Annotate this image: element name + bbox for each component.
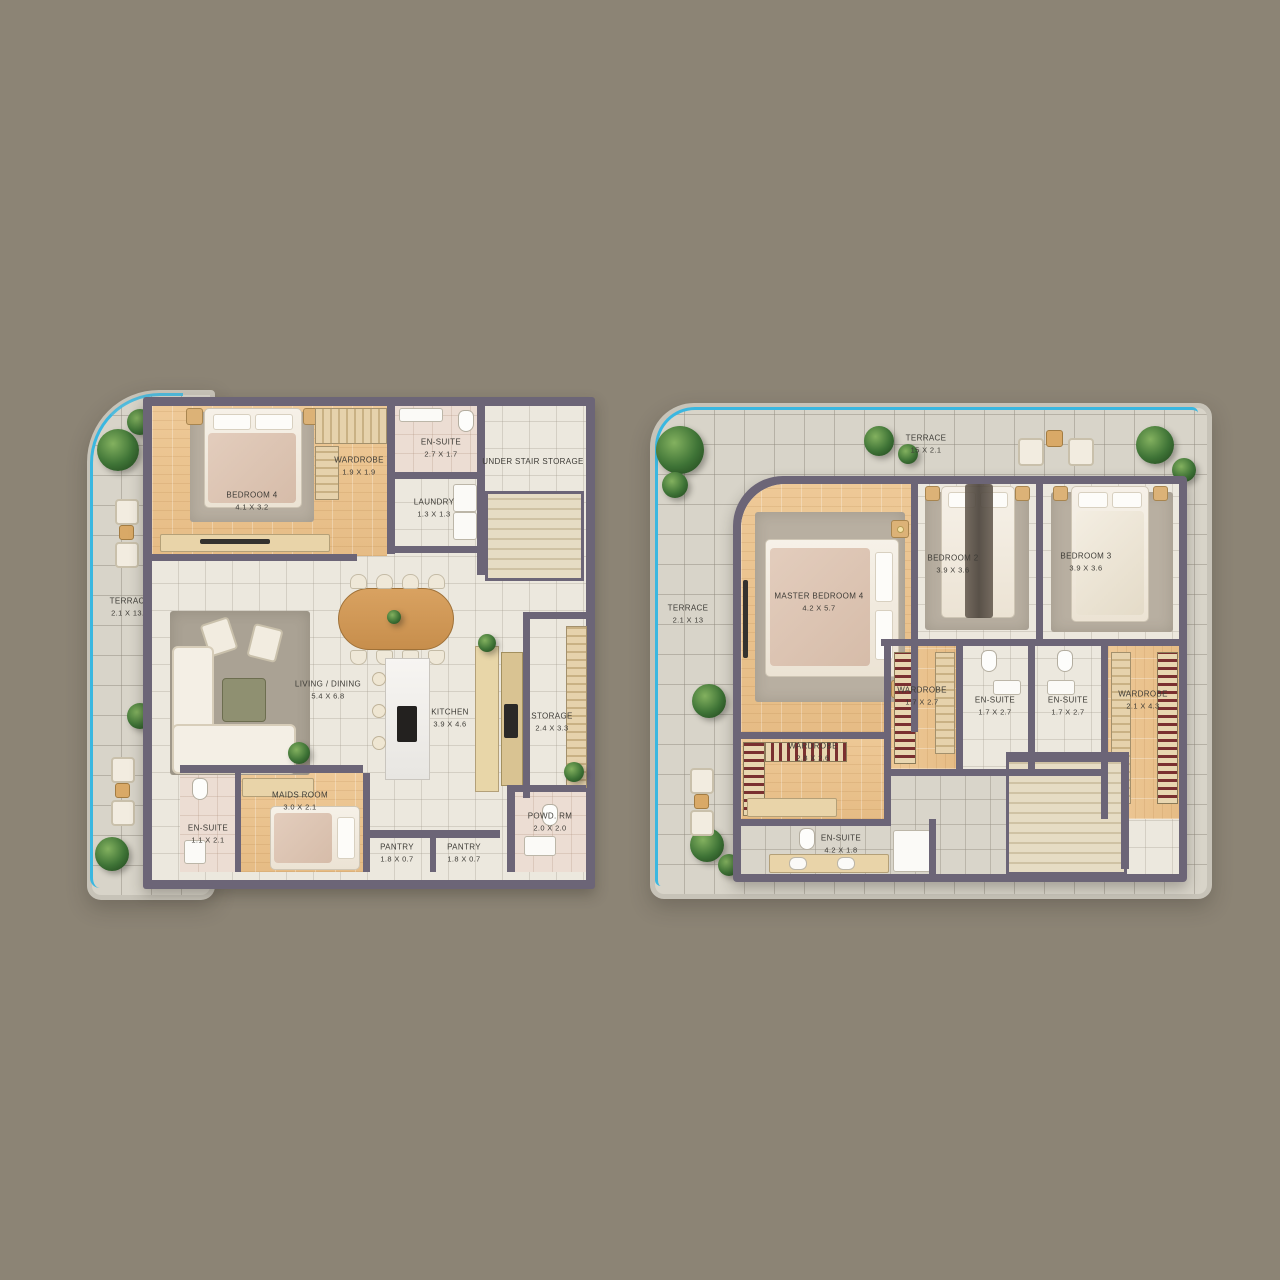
wall bbox=[884, 646, 891, 819]
toilet bbox=[981, 650, 997, 672]
sink bbox=[837, 857, 855, 870]
wall bbox=[395, 546, 485, 553]
dining-chair bbox=[376, 574, 393, 589]
vanity bbox=[769, 854, 889, 873]
room-dims: 2.4 X 3.3 bbox=[531, 722, 572, 733]
terrace-side-table bbox=[1046, 430, 1063, 447]
wall bbox=[1036, 484, 1043, 639]
room-label-bedroom4: BEDROOM 4 4.1 X 3.2 bbox=[226, 489, 277, 512]
room-name: EN-SUITE bbox=[1048, 694, 1088, 706]
plant bbox=[564, 762, 584, 782]
room-label-terrace-side: TERRACE 2.1 X 13 bbox=[668, 602, 709, 625]
toilet bbox=[799, 828, 815, 850]
room-dims: 1.7 X 2.7 bbox=[1048, 706, 1088, 717]
room-label-powder-room: POWD. RM 2.0 X 2.0 bbox=[528, 810, 573, 833]
plant bbox=[288, 742, 310, 764]
room-label-ensuite-master: EN-SUITE 4.2 X 1.8 bbox=[821, 832, 861, 855]
room-label-wardrobe-master: WARDROBE 2.8 X 2.6 bbox=[788, 740, 838, 763]
plant bbox=[95, 837, 129, 871]
room-dims: 3.0 X 2.1 bbox=[272, 801, 328, 812]
room-label-bedroom2: BEDROOM 2 3.9 X 3.6 bbox=[927, 552, 978, 575]
room-label-ensuite-lower: EN-SUITE 1.1 X 2.1 bbox=[188, 822, 228, 845]
room-dims: 1.8 X 0.7 bbox=[380, 853, 414, 864]
wall bbox=[881, 639, 1179, 646]
toilet bbox=[192, 778, 208, 800]
room-label-storage: STORAGE 2.4 X 3.3 bbox=[531, 710, 572, 733]
plant bbox=[97, 429, 139, 471]
coffee-table bbox=[222, 678, 266, 722]
staircase-a bbox=[485, 491, 584, 581]
wardrobe-closet bbox=[1157, 652, 1178, 804]
maids-bed bbox=[270, 806, 360, 870]
room-name: BEDROOM 4 bbox=[226, 489, 277, 501]
nightstand bbox=[1153, 486, 1168, 501]
plant bbox=[656, 426, 704, 474]
interior-b: MASTER BEDROOM 4 4.2 X 5.7 BEDROOM 2 3.9… bbox=[741, 484, 1179, 874]
washer bbox=[453, 484, 477, 512]
dryer bbox=[453, 512, 477, 540]
terrace-chair bbox=[1018, 438, 1044, 466]
wall bbox=[523, 612, 586, 619]
room-label-master-bedroom: MASTER BEDROOM 4 4.2 X 5.7 bbox=[774, 590, 863, 613]
room-label-pantry-left: PANTRY 1.8 X 0.7 bbox=[380, 841, 414, 864]
room-name: PANTRY bbox=[380, 841, 414, 853]
room-label-wardrobe-mid: WARDROBE 1.7 X 2.7 bbox=[897, 684, 947, 707]
nightstand bbox=[1015, 486, 1030, 501]
room-name: STORAGE bbox=[531, 710, 572, 722]
toilet bbox=[458, 410, 474, 432]
terrace-chair bbox=[1068, 438, 1094, 466]
terrace-chair bbox=[111, 800, 135, 826]
shower bbox=[893, 830, 931, 872]
tv bbox=[200, 539, 270, 544]
wall bbox=[523, 612, 530, 798]
room-dims: 2.7 X 1.7 bbox=[421, 448, 461, 459]
pillow bbox=[1112, 492, 1142, 508]
sink bbox=[789, 857, 807, 870]
room-dims: 4.1 X 3.2 bbox=[226, 501, 277, 512]
terrace-side-table bbox=[119, 525, 134, 540]
wall bbox=[363, 830, 500, 838]
plant bbox=[662, 472, 688, 498]
room-label-maids-room: MAIDS ROOM 3.0 X 2.1 bbox=[272, 789, 328, 812]
room-name: WARDROBE bbox=[788, 740, 838, 752]
room-name: WARDROBE bbox=[334, 454, 384, 466]
terrace-chair bbox=[115, 542, 139, 568]
room-dims: 1.9 X 1.9 bbox=[334, 466, 384, 477]
staircase-b bbox=[1006, 759, 1127, 875]
room-dims: 2.1 X 4.3 bbox=[1118, 700, 1168, 711]
dining-chair bbox=[428, 650, 445, 665]
sink bbox=[993, 680, 1021, 695]
room-dims: 4.2 X 5.7 bbox=[774, 602, 863, 613]
room-label-terrace-top: TERRACE 15 X 2.1 bbox=[906, 432, 947, 455]
room-name: TERRACE bbox=[668, 602, 709, 614]
room-name: EN-SUITE bbox=[188, 822, 228, 834]
wall bbox=[1101, 646, 1108, 819]
dining-chair bbox=[402, 574, 419, 589]
wall bbox=[929, 819, 936, 874]
room-dims: 1.7 X 2.7 bbox=[897, 696, 947, 707]
wardrobe-bench bbox=[747, 798, 837, 817]
stool bbox=[372, 736, 386, 750]
floorplan-canvas: TERRACE 2.1 X 13.0 bbox=[0, 0, 1280, 1280]
room-dims: 2.1 X 13 bbox=[668, 614, 709, 625]
plant bbox=[692, 684, 726, 718]
room-dims: 3.9 X 3.6 bbox=[1060, 562, 1111, 573]
room-dims: 2.0 X 2.0 bbox=[528, 822, 573, 833]
room-label-kitchen: KITCHEN 3.9 X 4.6 bbox=[431, 706, 469, 729]
pillow bbox=[875, 552, 893, 602]
room-dims: 2.8 X 2.6 bbox=[788, 752, 838, 763]
room-name: MASTER BEDROOM 4 bbox=[774, 590, 863, 602]
dining-chair bbox=[350, 574, 367, 589]
floor-plan-b: TERRACE 15 X 2.1 TERRACE 2.1 X 13 bbox=[648, 400, 1204, 892]
dining-chair bbox=[428, 574, 445, 589]
stool bbox=[372, 704, 386, 718]
wall bbox=[387, 406, 395, 554]
pillow bbox=[213, 414, 251, 430]
oven bbox=[504, 704, 518, 738]
room-name: LAUNDRY bbox=[414, 496, 455, 508]
room-name: PANTRY bbox=[447, 841, 481, 853]
wall bbox=[507, 785, 515, 872]
room-label-under-stair: UNDER STAIR STORAGE bbox=[482, 456, 583, 468]
wall bbox=[152, 554, 357, 561]
plant bbox=[864, 426, 894, 456]
room-name: WARDROBE bbox=[1118, 688, 1168, 700]
vanity bbox=[524, 836, 556, 856]
terrace-chair bbox=[690, 810, 714, 836]
wall bbox=[891, 769, 1108, 776]
room-dims: 15 X 2.1 bbox=[906, 444, 947, 455]
room-name: BEDROOM 2 bbox=[927, 552, 978, 564]
room-label-pantry-right: PANTRY 1.8 X 0.7 bbox=[447, 841, 481, 864]
terrace-chair bbox=[690, 768, 714, 794]
stool bbox=[372, 672, 386, 686]
wardrobe-closet bbox=[315, 408, 387, 444]
wall bbox=[363, 773, 370, 872]
room-name: EN-SUITE bbox=[421, 436, 461, 448]
bed-throw bbox=[965, 484, 993, 618]
terrace-chair bbox=[111, 757, 135, 783]
room-label-laundry: LAUNDRY 1.3 X 1.3 bbox=[414, 496, 455, 519]
plant bbox=[1136, 426, 1174, 464]
wall bbox=[235, 773, 241, 872]
room-name: EN-SUITE bbox=[975, 694, 1015, 706]
terrace-chair bbox=[115, 499, 139, 525]
room-dims: 1.7 X 2.7 bbox=[975, 706, 1015, 717]
duvet bbox=[274, 813, 332, 863]
nightstand bbox=[1053, 486, 1068, 501]
room-label-wardrobe-a: WARDROBE 1.9 X 1.9 bbox=[334, 454, 384, 477]
wall bbox=[956, 646, 963, 769]
vanity bbox=[399, 408, 443, 422]
room-label-ensuite-bed3: EN-SUITE 1.7 X 2.7 bbox=[1048, 694, 1088, 717]
room-label-ensuite-bed2: EN-SUITE 1.7 X 2.7 bbox=[975, 694, 1015, 717]
wall bbox=[1006, 752, 1129, 759]
room-dims: 5.4 X 6.8 bbox=[295, 690, 361, 701]
room-dims: 4.2 X 1.8 bbox=[821, 844, 861, 855]
pillow bbox=[255, 414, 293, 430]
pillow bbox=[337, 817, 355, 859]
toilet bbox=[1057, 650, 1073, 672]
dining-chair bbox=[350, 650, 367, 665]
room-label-wardrobe-right: WARDROBE 2.1 X 4.3 bbox=[1118, 688, 1168, 711]
floor-plan-a: TERRACE 2.1 X 13.0 bbox=[85, 385, 601, 897]
room-name: MAIDS ROOM bbox=[272, 789, 328, 801]
room-name: TERRACE bbox=[906, 432, 947, 444]
table-plant bbox=[387, 610, 401, 624]
room-label-living-dining: LIVING / DINING 5.4 X 6.8 bbox=[295, 678, 361, 701]
nightstand bbox=[925, 486, 940, 501]
nightstand bbox=[186, 408, 203, 425]
wall bbox=[430, 838, 436, 872]
room-dims: 3.9 X 4.6 bbox=[431, 718, 469, 729]
room-label-ensuite-top: EN-SUITE 2.7 X 1.7 bbox=[421, 436, 461, 459]
tv bbox=[743, 580, 748, 658]
room-dims: 1.8 X 0.7 bbox=[447, 853, 481, 864]
room-name: LIVING / DINING bbox=[295, 678, 361, 690]
wall bbox=[180, 765, 363, 773]
room-name: EN-SUITE bbox=[821, 832, 861, 844]
kitchen-counter bbox=[475, 646, 499, 792]
wall bbox=[507, 785, 586, 792]
wall bbox=[741, 732, 889, 739]
cooktop bbox=[397, 706, 417, 742]
room-name: POWD. RM bbox=[528, 810, 573, 822]
terrace-side-table bbox=[115, 783, 130, 798]
room-name: WARDROBE bbox=[897, 684, 947, 696]
wall bbox=[1028, 646, 1035, 769]
pillow bbox=[1078, 492, 1108, 508]
plant bbox=[478, 634, 496, 652]
nightstand bbox=[891, 520, 909, 538]
sink bbox=[1047, 680, 1075, 695]
room-label-bedroom3: BEDROOM 3 3.9 X 3.6 bbox=[1060, 550, 1111, 573]
room-name: UNDER STAIR STORAGE bbox=[482, 456, 583, 468]
interior-a: BEDROOM 4 4.1 X 3.2 WARDROBE 1.9 X 1.9 E… bbox=[152, 406, 586, 880]
terrace-side-table bbox=[694, 794, 709, 809]
wall bbox=[1121, 752, 1129, 869]
room-dims: 1.1 X 2.1 bbox=[188, 834, 228, 845]
room-dims: 1.3 X 1.3 bbox=[414, 508, 455, 519]
room-dims: 3.9 X 3.6 bbox=[927, 564, 978, 575]
room-name: BEDROOM 3 bbox=[1060, 550, 1111, 562]
wall bbox=[741, 819, 891, 826]
wall bbox=[395, 472, 485, 479]
room-name: KITCHEN bbox=[431, 706, 469, 718]
